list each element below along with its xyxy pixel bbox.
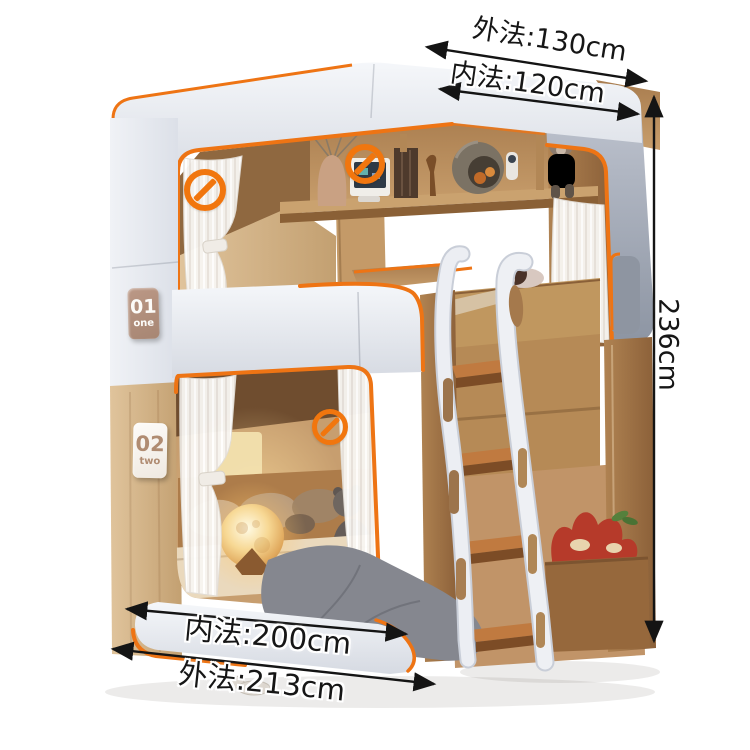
bunk1-badge: 01 one <box>127 288 159 340</box>
curtain-tie-lower-left <box>198 471 225 487</box>
bunk2-number: 02 <box>135 434 165 456</box>
no-sign-icon <box>184 169 226 211</box>
left-column <box>110 118 182 658</box>
dimension-label-height: 236cm <box>653 295 684 395</box>
bunk2-badge: 02 two <box>133 423 168 479</box>
product-photo-stage: 外法:130cm 内法:120cm 236cm 内法:200cm 外法:213c… <box>0 0 750 750</box>
pod-basket <box>452 142 504 194</box>
bunk2-word: two <box>139 457 160 467</box>
bed-illustration <box>0 0 750 750</box>
bunk1-number: 01 <box>130 298 157 318</box>
bunk1-word: one <box>133 319 154 330</box>
no-sign-icon <box>312 409 348 445</box>
capsule-top-band <box>172 283 423 378</box>
rail-cushion <box>610 254 640 334</box>
shelf-divider <box>536 128 544 190</box>
no-sign-icon <box>345 144 385 184</box>
